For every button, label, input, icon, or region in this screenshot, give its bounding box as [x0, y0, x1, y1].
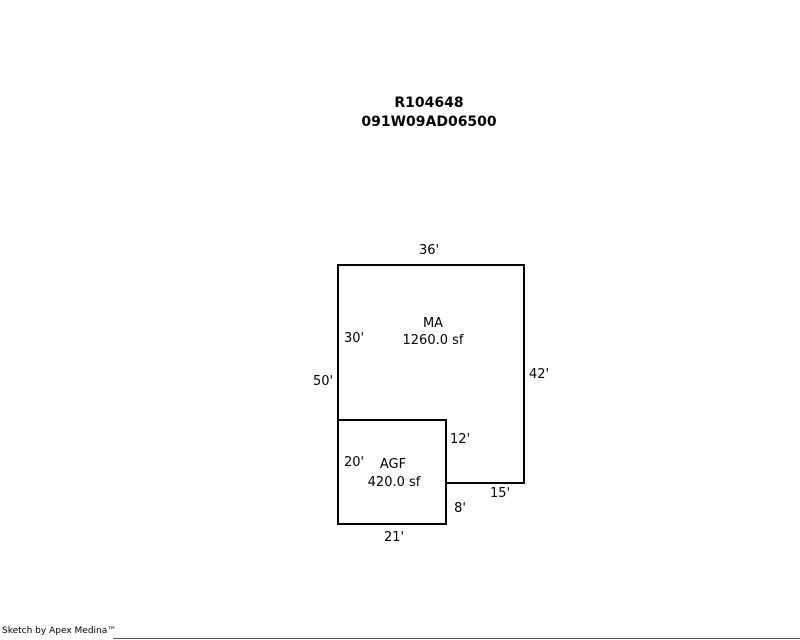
area-agf-code: AGF — [380, 458, 406, 472]
sketch-line-top — [337, 264, 525, 266]
dimension-top: 36' — [419, 244, 439, 258]
dimension-step-down: 8' — [454, 502, 466, 516]
area-ma-code: MA — [423, 317, 443, 331]
dimension-inner-vertical: 12' — [450, 433, 470, 447]
dimension-left-lower: 20' — [344, 456, 364, 470]
sketch-line-step-vertical — [445, 482, 447, 525]
sketch-line-divider-vertical — [445, 419, 447, 484]
dimension-right: 42' — [529, 368, 549, 382]
footer-divider — [113, 638, 800, 639]
dimension-left-upper: 30' — [344, 332, 364, 346]
sketch-line-right — [523, 264, 525, 484]
account-number: R104648 — [361, 94, 496, 113]
sketch-page: R104648 091W09AD06500 36' 30' 50' 42' 12… — [0, 0, 800, 640]
dimension-left-total: 50' — [313, 375, 333, 389]
parcel-header: R104648 091W09AD06500 — [361, 94, 496, 132]
dimension-bottom: 21' — [384, 531, 404, 545]
sketch-credit: Sketch by Apex Medina™ — [2, 626, 116, 637]
parcel-id: 091W09AD06500 — [361, 113, 496, 132]
area-agf-size: 420.0 sf — [368, 476, 421, 490]
area-ma-size: 1260.0 sf — [403, 334, 464, 348]
sketch-line-left — [337, 264, 339, 525]
sketch-line-divider-horizontal — [337, 419, 447, 421]
sketch-line-step-horizontal — [446, 482, 525, 484]
sketch-line-bottom — [337, 523, 447, 525]
dimension-step-right: 15' — [490, 487, 510, 501]
